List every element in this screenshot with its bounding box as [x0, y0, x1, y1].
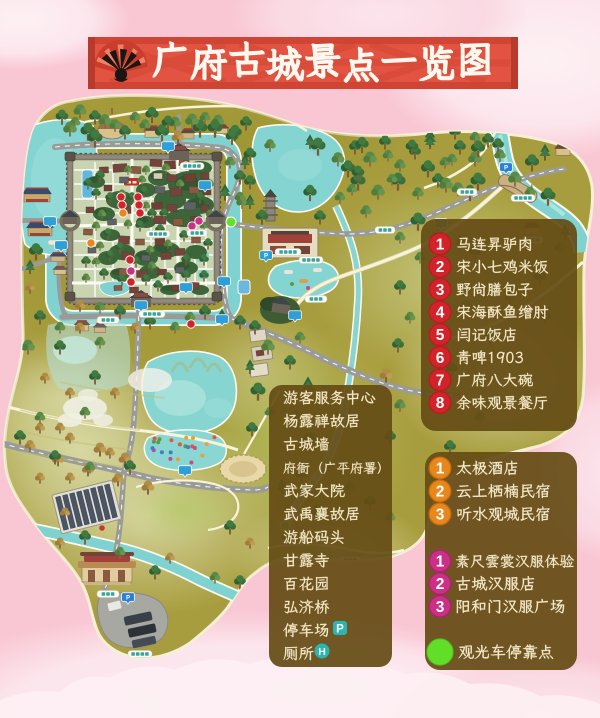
svg-text:3: 3	[436, 599, 445, 616]
svg-text:P: P	[264, 253, 268, 260]
svg-text:5: 5	[436, 327, 445, 344]
svg-text:3: 3	[436, 282, 445, 299]
svg-text:2: 2	[436, 259, 445, 276]
svg-text:3: 3	[436, 507, 445, 524]
svg-text:7: 7	[436, 372, 445, 389]
svg-text:P: P	[504, 165, 508, 172]
svg-text:P: P	[336, 624, 344, 636]
svg-text:8: 8	[436, 395, 445, 412]
svg-text:2: 2	[436, 576, 445, 593]
svg-text:2: 2	[436, 484, 445, 501]
svg-text:P: P	[126, 595, 130, 602]
svg-text:1: 1	[436, 554, 445, 571]
svg-text:4: 4	[436, 305, 445, 322]
svg-text:1: 1	[436, 237, 445, 254]
svg-text:6: 6	[436, 350, 445, 367]
svg-text:H: H	[318, 646, 326, 658]
svg-text:1: 1	[436, 461, 445, 478]
